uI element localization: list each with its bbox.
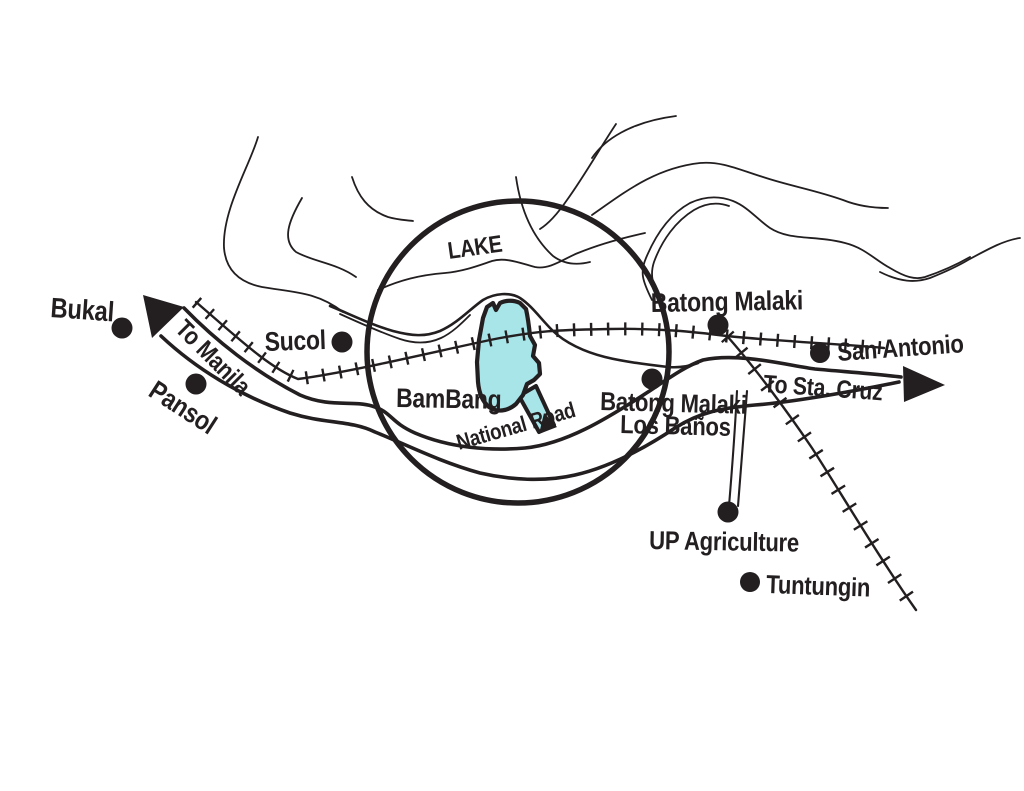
road-label-to-manila: To Manila (170, 314, 257, 401)
map-labels: Bukal Pansol Sucol To Manila LAKE BamBan… (50, 230, 965, 603)
river-line (516, 177, 590, 264)
place-label-los-banos: Los Baños (620, 410, 731, 442)
river-line (288, 198, 356, 277)
river-lines (224, 116, 1020, 312)
river-line (224, 137, 343, 312)
sketch-map: Bukal Pansol Sucol To Manila LAKE BamBan… (0, 0, 1024, 791)
place-label-bukal: Bukal (50, 291, 116, 328)
town-dot-los-banos (642, 369, 663, 390)
place-label-up-agriculture: UP Agriculture (649, 526, 799, 558)
town-dot-up-agriculture (718, 502, 739, 523)
direction-arrow-to-sta-cruz-icon (903, 366, 945, 402)
map-canvas: Bukal Pansol Sucol To Manila LAKE BamBan… (0, 0, 1024, 791)
place-label-sucol: Sucol (264, 325, 326, 357)
place-label-batong-malaki-north: Batong Malaki (651, 286, 804, 319)
town-dot-pansol (186, 374, 207, 395)
river-line (643, 197, 970, 300)
river-line (652, 204, 729, 300)
place-label-pansol: Pansol (143, 375, 221, 440)
lake-label: LAKE (446, 230, 504, 264)
place-label-san-antonio: San Antonio (836, 330, 964, 368)
town-dot-san-antonio (810, 343, 830, 363)
town-dot-batong-malaki (708, 315, 729, 336)
river-line (352, 177, 413, 221)
place-label-tuntungin: Tuntungin (766, 570, 871, 603)
town-dot-bukal (112, 318, 133, 339)
river-line (592, 163, 888, 215)
town-dot-tuntungin (740, 572, 760, 592)
river-line (592, 116, 676, 158)
town-dot-sucol (332, 332, 353, 353)
place-label-bambang: BamBang (396, 383, 502, 415)
